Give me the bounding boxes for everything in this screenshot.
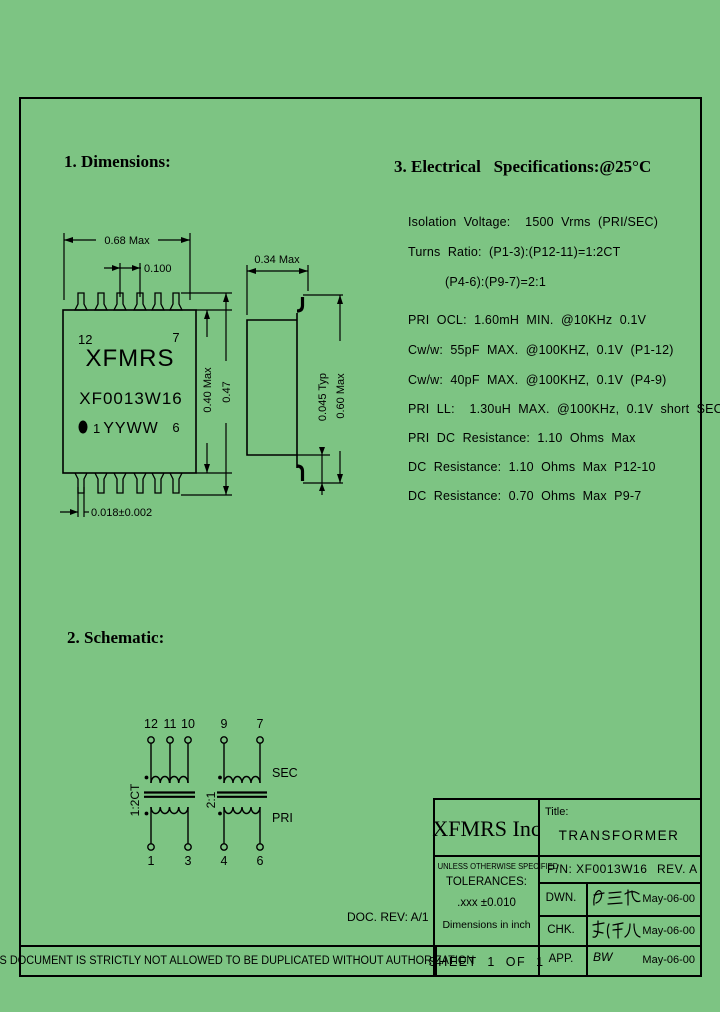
spec-line: PRI OCL: 1.60mH MIN. @10KHz 0.1V (408, 313, 646, 327)
chk-label: CHK. (538, 924, 584, 936)
tb-line (538, 915, 700, 917)
spec-line: DC Resistance: 1.10 Ohms Max P12-10 (408, 460, 656, 474)
sch-pin-9: 9 (221, 717, 228, 731)
chk-date: May-06-00 (642, 925, 695, 937)
app-label: APP. (538, 953, 584, 965)
sch-pin-11: 11 (164, 717, 177, 731)
spec-line: Cw/w: 55pF MAX. @100KHZ, 0.1V (P1-12) (408, 343, 674, 357)
sch-pin-3: 3 (185, 854, 192, 868)
sch-terminals-bottom (148, 844, 263, 850)
tb-line (586, 882, 588, 975)
app-date: May-06-00 (642, 954, 695, 966)
sch-pin-4: 4 (221, 854, 228, 868)
brand-marking: XFMRS (86, 345, 175, 372)
tolerance-note-4: Dimensions in inch (435, 919, 538, 931)
package-drawings: 0.68 Max 0.100 12 7 XFMRS XF0013W16 1 YY… (40, 225, 370, 525)
bottom-pins (75, 473, 182, 493)
sch-pin-6: 6 (257, 854, 264, 868)
sch-pin-1: 1 (148, 854, 155, 868)
footer-notice-bar: THIS DOCUMENT IS STRICTLY NOT ALLOWED TO… (19, 945, 437, 977)
ratio-right-label: 2:1 (204, 791, 218, 808)
spec-line: PRI LL: 1.30uH MAX. @100KHz, 0.1V short … (408, 402, 720, 416)
company-name: XFMRS Inc (435, 800, 538, 857)
pri-winding-right (224, 807, 260, 814)
spec-line: (P4-6):(P9-7)=2:1 (445, 275, 546, 289)
top-pins (75, 293, 182, 310)
sheet-number: SHEET 1 OF 1 (435, 947, 538, 977)
pin7-marking: 7 (172, 330, 179, 345)
sch-pin-10: 10 (181, 717, 195, 731)
part-number: P/N: XF0013W16 (547, 862, 647, 876)
spec-line: Turns Ratio: (P1-3):(P12-11)=1:2CT (408, 245, 620, 259)
dim-height-label: 0.60 Max (335, 373, 347, 419)
side-body (247, 313, 297, 468)
pri-label: PRI (272, 811, 293, 825)
transformer-schematic: 12 11 10 9 7 (125, 705, 305, 873)
spec-line: Cw/w: 40pF MAX. @100KHZ, 0.1V (P4-9) (408, 373, 666, 387)
dim-width-label: 0.68 Max (104, 235, 150, 247)
drawing-title: TRANSFORMER (538, 828, 700, 843)
datasheet-page: 1. Dimensions: 3. Electrical Specificati… (0, 0, 720, 1012)
chk-signature (590, 918, 642, 942)
dwn-date: May-06-00 (642, 893, 695, 905)
side-bottom-lead (297, 466, 303, 481)
tolerance-note-2: TOLERANCES: (435, 876, 538, 888)
tolerance-note-1: UNLESS OTHERWISE SPECIFIED (438, 862, 536, 871)
spec-line: DC Resistance: 0.70 Ohms Max P9-7 (408, 489, 641, 503)
tb-line (538, 882, 700, 884)
doc-rev: DOC. REV: A/1 (347, 910, 429, 924)
sch-pin-7: 7 (257, 717, 264, 731)
pri-winding-left (151, 807, 188, 814)
part-number-marking: XF0013W16 (79, 389, 183, 408)
schematic-heading: 2. Schematic: (67, 628, 164, 648)
dim-body-height-label: 0.40 Max (202, 367, 214, 413)
electrical-heading: 3. Electrical Specifications:@25°C (394, 157, 651, 177)
app-signature: BW (593, 950, 612, 964)
pin6-marking: 6 (172, 420, 179, 435)
title-label: Title: (545, 806, 568, 818)
dim-lead-label: 0.018±0.002 (91, 507, 152, 519)
pin1-marking: 1 (93, 421, 100, 436)
dim-overall-height-label: 0.47 (221, 381, 233, 402)
polarity-dot (218, 812, 222, 816)
dim-standoff-label: 0.045 Typ (317, 373, 329, 421)
polarity-dot (145, 812, 149, 816)
spec-line: Isolation Voltage: 1500 Vrms (PRI/SEC) (408, 215, 658, 229)
sch-terminals-top (148, 737, 263, 743)
dimensions-heading: 1. Dimensions: (64, 152, 171, 172)
dwn-label: DWN. (538, 892, 584, 904)
pin1-dot (79, 421, 88, 434)
sec-label: SEC (272, 766, 298, 780)
title-block: XFMRS Inc Title: TRANSFORMER P/N: XF0013… (433, 798, 702, 977)
ratio-left-label: 1:2CT (128, 783, 142, 816)
sch-pin-12: 12 (144, 717, 158, 731)
date-code-marking: YYWW (103, 420, 159, 437)
dim-side-width-label: 0.34 Max (254, 254, 300, 266)
footer-notice-text: THIS DOCUMENT IS STRICTLY NOT ALLOWED TO… (0, 955, 474, 967)
revision: REV. A (657, 862, 698, 876)
dim-pitch-label: 0.100 (144, 263, 172, 275)
tolerance-note-3: .xxx ±0.010 (435, 897, 538, 909)
polarity-dot (145, 776, 149, 780)
sec-winding-right (224, 777, 260, 784)
dwn-signature (590, 886, 642, 910)
side-top-lead (297, 297, 303, 311)
polarity-dot (218, 776, 222, 780)
spec-line: PRI DC Resistance: 1.10 Ohms Max (408, 431, 636, 445)
